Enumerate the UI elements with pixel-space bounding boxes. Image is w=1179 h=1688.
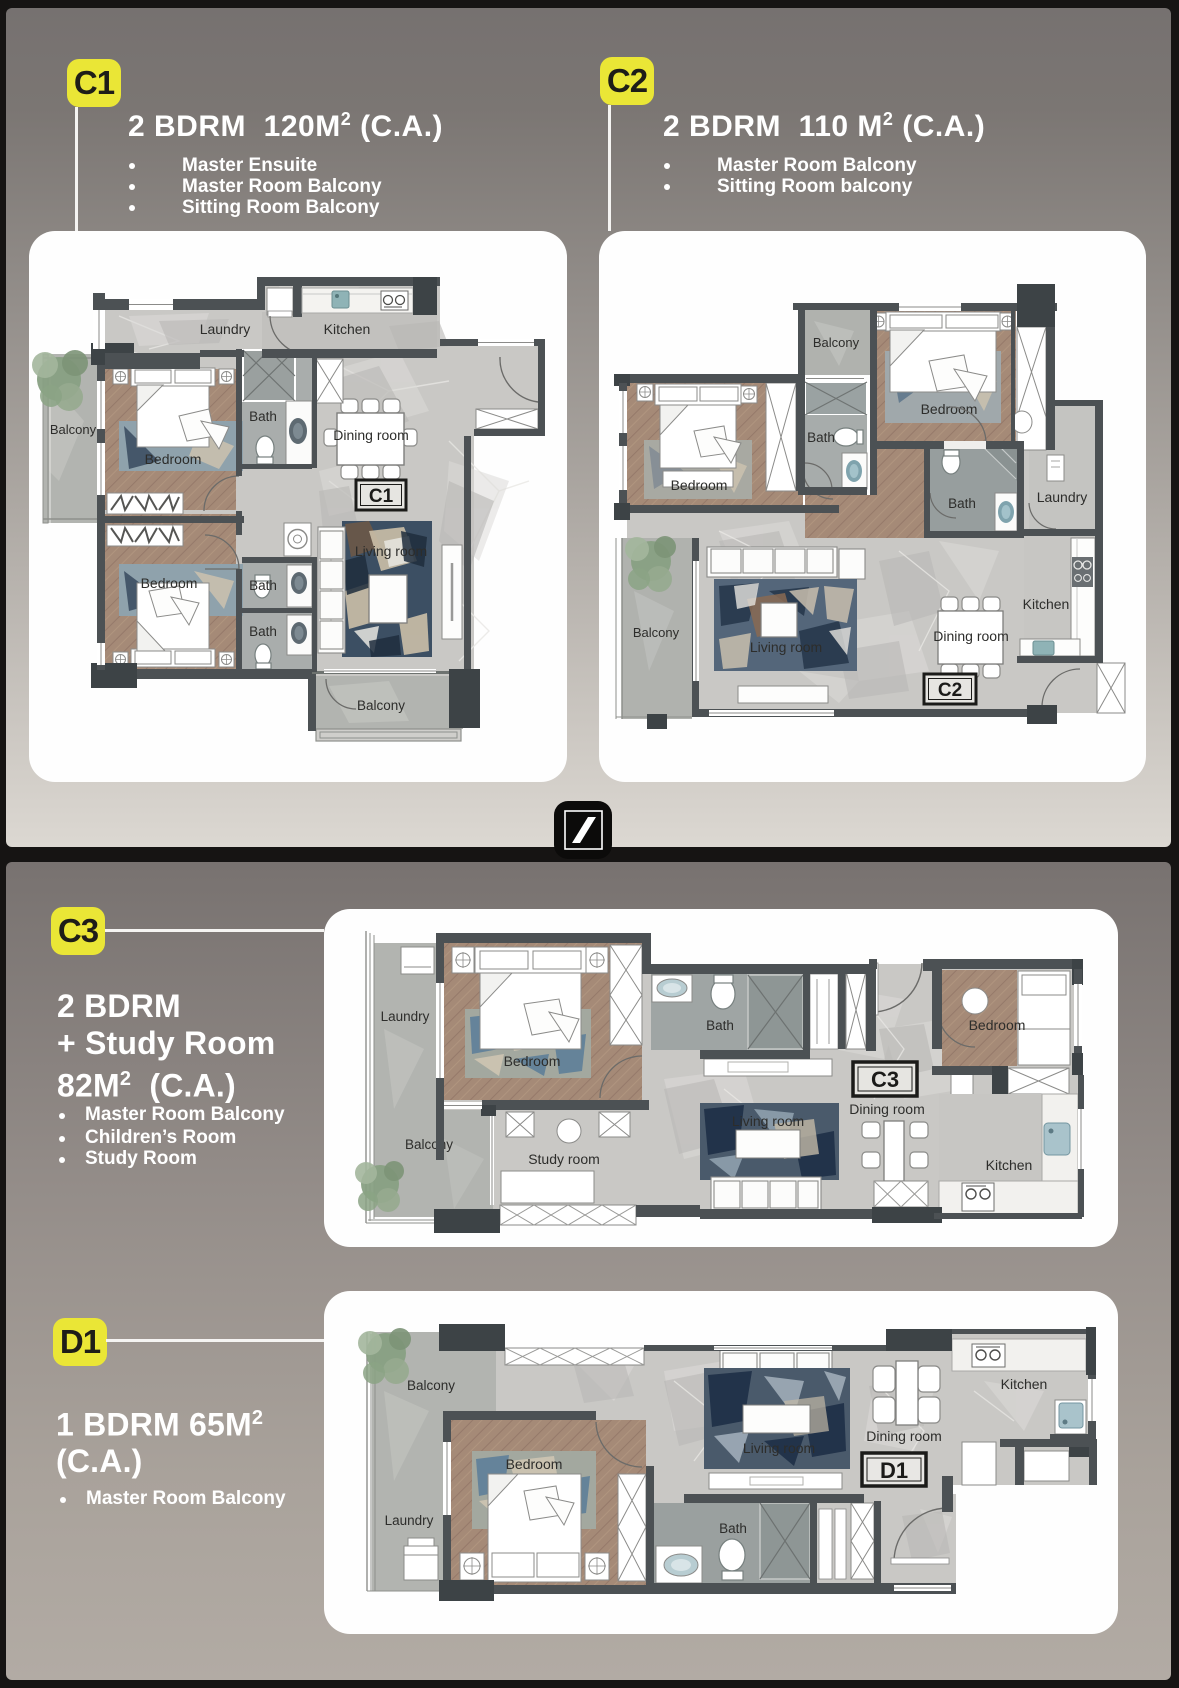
svg-text:Balcony: Balcony	[405, 1137, 453, 1152]
svg-text:Kitchen: Kitchen	[1023, 596, 1070, 612]
svg-text:Kitchen: Kitchen	[986, 1157, 1033, 1173]
svg-text:D1: D1	[880, 1458, 908, 1483]
svg-text:Bath: Bath	[948, 496, 976, 511]
svg-text:Living room: Living room	[355, 543, 427, 559]
svg-text:Dining room: Dining room	[866, 1428, 941, 1444]
svg-text:C3: C3	[871, 1067, 899, 1092]
svg-text:Living room: Living room	[732, 1113, 804, 1129]
svg-text:Laundry: Laundry	[385, 1513, 434, 1528]
svg-text:Bedroom: Bedroom	[145, 451, 202, 467]
svg-text:C2: C2	[938, 680, 962, 701]
svg-text:Bath: Bath	[249, 409, 277, 424]
svg-text:Bath: Bath	[249, 624, 277, 639]
svg-text:Kitchen: Kitchen	[1001, 1376, 1048, 1392]
svg-text:Bedroom: Bedroom	[671, 477, 728, 493]
svg-text:Bedroom: Bedroom	[921, 401, 978, 417]
svg-text:Bath: Bath	[719, 1521, 747, 1536]
svg-text:Balcony: Balcony	[50, 422, 97, 437]
svg-text:C1: C1	[369, 486, 394, 507]
svg-text:Dining room: Dining room	[933, 628, 1008, 644]
svg-text:Laundry: Laundry	[381, 1009, 430, 1024]
svg-text:Bath: Bath	[807, 430, 835, 445]
svg-text:Bedroom: Bedroom	[969, 1017, 1026, 1033]
svg-text:Bedroom: Bedroom	[504, 1053, 561, 1069]
svg-text:Dining room: Dining room	[333, 427, 408, 443]
svg-text:Laundry: Laundry	[1037, 489, 1088, 505]
svg-text:Bath: Bath	[706, 1018, 734, 1033]
svg-text:Bedroom: Bedroom	[141, 575, 198, 591]
svg-text:Dining room: Dining room	[849, 1101, 924, 1117]
svg-text:Living room: Living room	[750, 639, 822, 655]
svg-text:Bedroom: Bedroom	[506, 1456, 563, 1472]
svg-text:Balcony: Balcony	[407, 1378, 455, 1393]
svg-text:Study room: Study room	[528, 1151, 600, 1167]
svg-text:Kitchen: Kitchen	[324, 321, 371, 337]
svg-text:Laundry: Laundry	[200, 321, 251, 337]
svg-text:Balcony: Balcony	[633, 625, 680, 640]
svg-text:Balcony: Balcony	[357, 698, 405, 713]
svg-text:Living room: Living room	[743, 1440, 815, 1456]
svg-text:Bath: Bath	[249, 578, 277, 593]
svg-text:Balcony: Balcony	[813, 335, 860, 350]
